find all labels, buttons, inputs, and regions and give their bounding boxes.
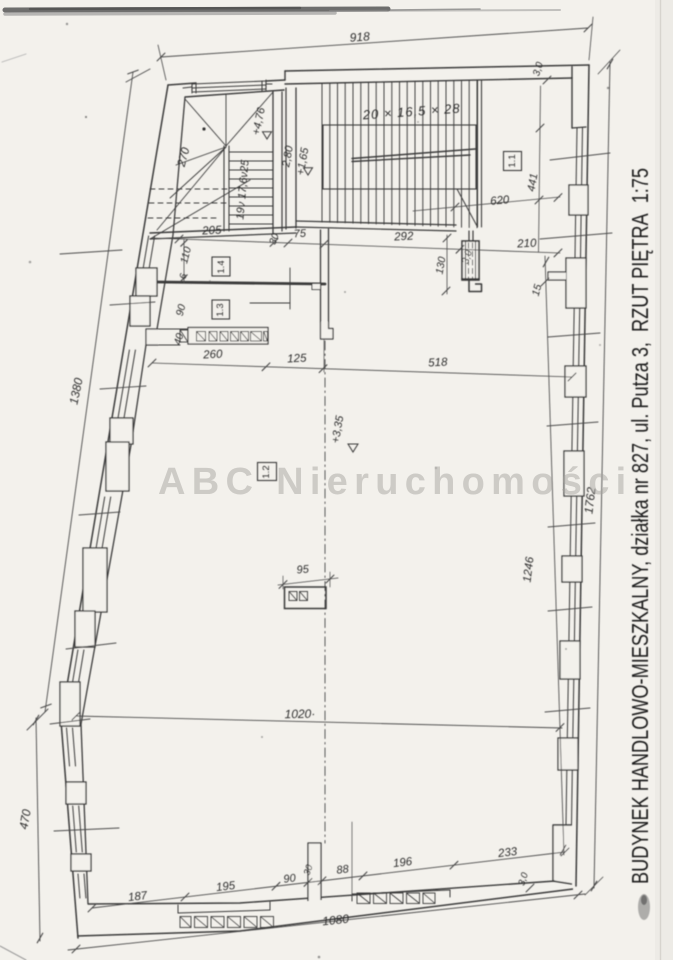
svg-text:BUDYNEK HANDLOWO-MIESZKALNY, d: BUDYNEK HANDLOWO-MIESZKALNY, działka nr … <box>627 168 653 884</box>
svg-text:233: 233 <box>496 846 518 860</box>
svg-text:1.1: 1.1 <box>507 154 518 167</box>
svg-text:75: 75 <box>293 228 307 241</box>
svg-text:1080: 1080 <box>322 912 350 929</box>
svg-text:918: 918 <box>349 29 370 44</box>
svg-text:95: 95 <box>296 563 310 576</box>
svg-text:620: 620 <box>490 194 511 208</box>
svg-text:210: 210 <box>516 237 537 250</box>
svg-text:518: 518 <box>428 356 448 369</box>
svg-text:196: 196 <box>392 856 413 870</box>
svg-text:90: 90 <box>283 872 297 886</box>
svg-text:ABC Nieruchomości: ABC Nieruchomości <box>158 461 633 503</box>
svg-text:1.4: 1.4 <box>216 260 227 273</box>
svg-text:292: 292 <box>393 230 414 243</box>
svg-text:187: 187 <box>127 890 148 904</box>
svg-text:1.3: 1.3 <box>215 303 226 316</box>
svg-text:260: 260 <box>202 348 223 361</box>
svg-text:125: 125 <box>287 352 307 365</box>
svg-text:205: 205 <box>201 224 222 237</box>
svg-text:195: 195 <box>215 880 236 894</box>
svg-text:1020·: 1020· <box>284 707 315 722</box>
svg-text:88: 88 <box>336 863 350 877</box>
